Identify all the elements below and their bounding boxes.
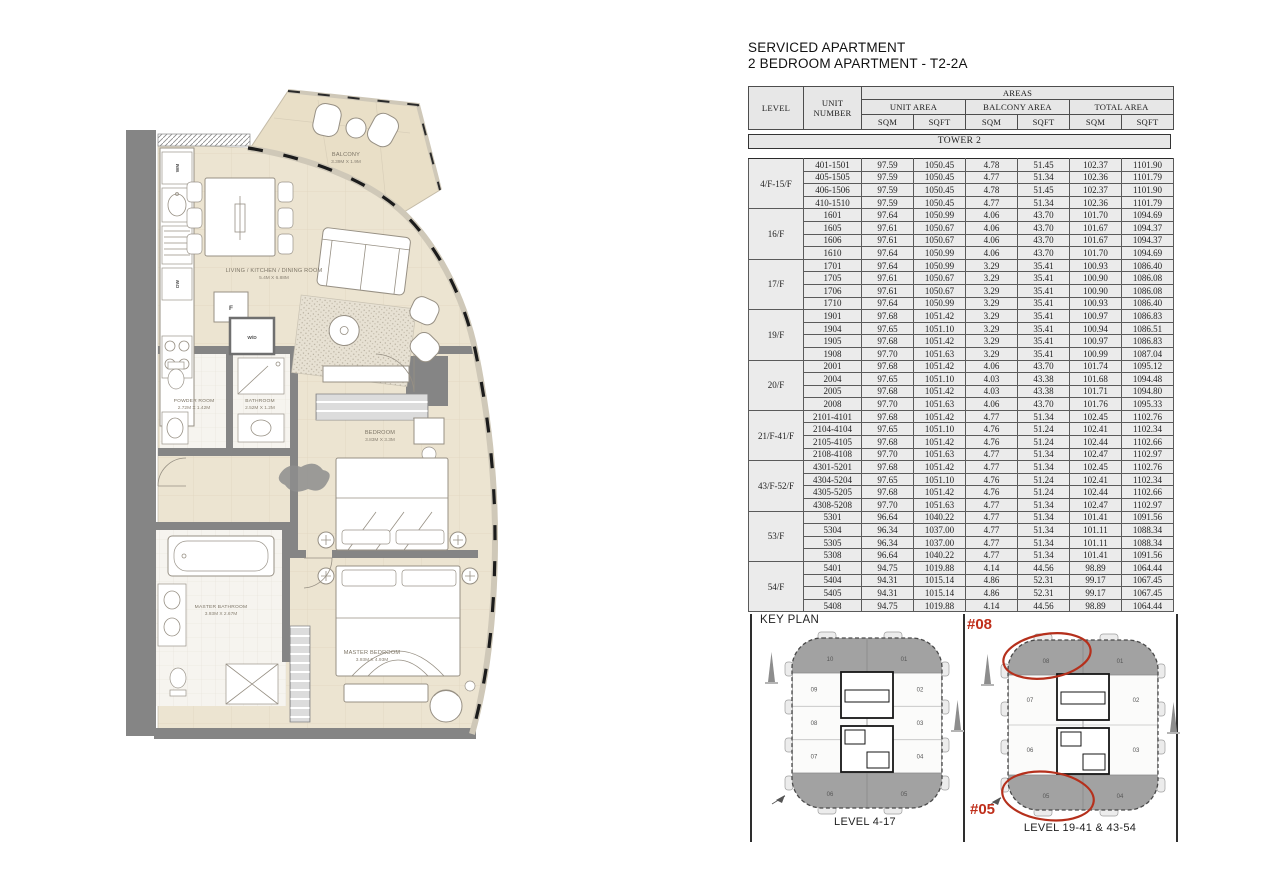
unit-number-cell: 4305-5205 — [804, 486, 862, 499]
key-plan-level-4-17: 10010908070203040605 — [762, 630, 972, 815]
col-areas: AREAS — [862, 87, 1174, 100]
area-value-cell: 1050.45 — [914, 196, 966, 209]
area-value-cell: 51.34 — [1018, 536, 1070, 549]
keyplan-unit-label: 03 — [1133, 748, 1140, 754]
table-row: 2104-410497.651051.104.7651.24102.411102… — [749, 423, 1174, 436]
area-value-cell: 1051.42 — [914, 486, 966, 499]
area-value-cell: 1051.42 — [914, 335, 966, 348]
area-value-cell: 1050.99 — [914, 259, 966, 272]
title-line1: SERVICED APARTMENT — [748, 40, 905, 55]
area-value-cell: 35.41 — [1018, 310, 1070, 323]
area-value-cell: 97.65 — [862, 373, 914, 386]
powder-room-label: POWDER ROOM — [174, 398, 215, 404]
table-row: 19/F190197.681051.423.2935.41100.971086.… — [749, 310, 1174, 323]
keyplan-unit-label: 01 — [1117, 659, 1124, 665]
area-value-cell: 99.17 — [1070, 587, 1122, 600]
col-sqm: SQM — [966, 115, 1018, 130]
area-value-cell: 96.34 — [862, 536, 914, 549]
area-value-cell: 1051.42 — [914, 436, 966, 449]
key-plan-caption-1: LEVEL 4-17 — [800, 816, 930, 828]
unit-number-cell: 2004 — [804, 373, 862, 386]
area-value-cell: 97.61 — [862, 234, 914, 247]
area-value-cell: 97.68 — [862, 335, 914, 348]
area-value-cell: 1051.63 — [914, 398, 966, 411]
keyplan-unit-label: 02 — [1133, 698, 1140, 704]
area-value-cell: 1087.04 — [1122, 347, 1174, 360]
area-value-cell: 97.61 — [862, 272, 914, 285]
keyplan-unit-label: 08 — [1043, 659, 1050, 665]
area-value-cell: 1101.90 — [1122, 184, 1174, 197]
level-cell: 43/F-52/F — [749, 461, 804, 511]
keyplan-unit-label: 05 — [1043, 794, 1050, 800]
area-value-cell: 1086.40 — [1122, 297, 1174, 310]
area-value-cell: 3.29 — [966, 259, 1018, 272]
area-value-cell: 1086.08 — [1122, 272, 1174, 285]
area-value-cell: 97.61 — [862, 284, 914, 297]
tower-icon — [1170, 702, 1177, 732]
area-value-cell: 97.68 — [862, 461, 914, 474]
area-value-cell: 97.64 — [862, 259, 914, 272]
area-table-header: LEVEL UNIT NUMBER AREAS UNIT AREA BALCON… — [748, 86, 1174, 130]
area-value-cell: 1067.45 — [1122, 574, 1174, 587]
area-value-cell: 1086.83 — [1122, 335, 1174, 348]
area-value-cell: 1101.90 — [1122, 159, 1174, 172]
area-value-cell: 4.06 — [966, 209, 1018, 222]
master-bedroom-dims: 3.93M X 4.93M — [356, 657, 389, 663]
area-value-cell: 97.68 — [862, 310, 914, 323]
unit-number-cell: 2108-4108 — [804, 448, 862, 461]
area-value-cell: 43.70 — [1018, 221, 1070, 234]
unit-number-cell: 5404 — [804, 574, 862, 587]
unit-number-cell: 1710 — [804, 297, 862, 310]
unit-number-cell: 1606 — [804, 234, 862, 247]
table-row: 200597.681051.424.0343.38101.711094.80 — [749, 385, 1174, 398]
area-value-cell: 101.67 — [1070, 234, 1122, 247]
table-row: 540494.311015.144.8652.3199.171067.45 — [749, 574, 1174, 587]
area-value-cell: 1102.76 — [1122, 410, 1174, 423]
area-value-cell: 101.67 — [1070, 221, 1122, 234]
area-value-cell: 1050.99 — [914, 247, 966, 260]
area-value-cell: 1086.40 — [1122, 259, 1174, 272]
area-value-cell: 97.68 — [862, 486, 914, 499]
dw-label: DW — [175, 280, 181, 288]
area-value-cell: 1102.97 — [1122, 448, 1174, 461]
table-row: 20/F200197.681051.424.0643.70101.741095.… — [749, 360, 1174, 373]
closet — [290, 626, 310, 722]
double-vanity — [158, 584, 186, 646]
unit-number-cell: 405-1505 — [804, 171, 862, 184]
unit-number-cell: 401-1501 — [804, 159, 862, 172]
table-row: 530596.341037.004.7751.34101.111088.34 — [749, 536, 1174, 549]
area-value-cell: 4.06 — [966, 234, 1018, 247]
area-value-cell: 4.86 — [966, 574, 1018, 587]
area-value-cell: 1050.67 — [914, 234, 966, 247]
area-value-cell: 4.76 — [966, 486, 1018, 499]
area-value-cell: 3.29 — [966, 335, 1018, 348]
area-value-cell: 97.65 — [862, 473, 914, 486]
col-unit-area: UNIT AREA — [862, 100, 966, 115]
table-row: 170597.611050.673.2935.41100.901086.08 — [749, 272, 1174, 285]
area-value-cell: 97.68 — [862, 385, 914, 398]
area-value-cell: 1051.63 — [914, 499, 966, 512]
floor-plan: WM DW F — [118, 78, 530, 778]
area-value-cell: 1050.99 — [914, 209, 966, 222]
area-value-cell: 1094.69 — [1122, 209, 1174, 222]
area-value-cell: 4.77 — [966, 461, 1018, 474]
area-value-cell: 3.29 — [966, 310, 1018, 323]
area-value-cell: 1050.45 — [914, 159, 966, 172]
area-table-body: 4/F-15/F401-150197.591050.454.7851.45102… — [749, 159, 1174, 612]
unit-number-cell: 4304-5204 — [804, 473, 862, 486]
area-value-cell: 4.77 — [966, 410, 1018, 423]
master-bathroom-label: MASTER BATHROOM — [195, 604, 248, 610]
table-row: 43/F-52/F4301-520197.681051.424.7751.341… — [749, 461, 1174, 474]
area-value-cell: 52.31 — [1018, 574, 1070, 587]
area-value-cell: 44.56 — [1018, 599, 1070, 612]
area-value-cell: 101.11 — [1070, 524, 1122, 537]
title-line2: 2 BEDROOM APARTMENT - T2-2A — [748, 56, 968, 71]
balcony-label: BALCONY — [332, 152, 360, 158]
col-sqm: SQM — [1070, 115, 1122, 130]
keyplan-unit-label: 03 — [917, 721, 924, 727]
area-value-cell: 101.68 — [1070, 373, 1122, 386]
table-row: 170697.611050.673.2935.41100.901086.08 — [749, 284, 1174, 297]
area-value-cell: 35.41 — [1018, 322, 1070, 335]
table-row: 4308-520897.701051.634.7751.34102.471102… — [749, 499, 1174, 512]
keyplan-unit-label: 10 — [827, 657, 834, 663]
area-value-cell: 1064.44 — [1122, 562, 1174, 575]
area-value-cell: 97.70 — [862, 398, 914, 411]
area-value-cell: 102.37 — [1070, 184, 1122, 197]
area-value-cell: 94.31 — [862, 574, 914, 587]
level-cell: 20/F — [749, 360, 804, 410]
table-row: 405-150597.591050.454.7751.34102.361101.… — [749, 171, 1174, 184]
area-value-cell: 35.41 — [1018, 347, 1070, 360]
area-value-cell: 51.34 — [1018, 524, 1070, 537]
area-value-cell: 1094.80 — [1122, 385, 1174, 398]
unit-number-cell: 2104-4104 — [804, 423, 862, 436]
area-value-cell: 1015.14 — [914, 587, 966, 600]
area-value-cell: 4.76 — [966, 436, 1018, 449]
area-value-cell: 1094.37 — [1122, 234, 1174, 247]
area-value-cell: 101.76 — [1070, 398, 1122, 411]
area-value-cell: 51.34 — [1018, 511, 1070, 524]
area-value-cell: 4.14 — [966, 562, 1018, 575]
table-row: 406-150697.591050.454.7851.45102.371101.… — [749, 184, 1174, 197]
area-value-cell: 102.47 — [1070, 448, 1122, 461]
table-row: 21/F-41/F2101-410197.681051.424.7751.341… — [749, 410, 1174, 423]
area-value-cell: 4.77 — [966, 448, 1018, 461]
bedroom-label: BEDROOM — [365, 430, 395, 436]
core-block — [1057, 674, 1109, 720]
tv-console — [323, 366, 409, 382]
area-value-cell: 97.61 — [862, 221, 914, 234]
area-value-cell: 3.29 — [966, 322, 1018, 335]
area-value-cell: 97.64 — [862, 209, 914, 222]
area-value-cell: 100.90 — [1070, 284, 1122, 297]
area-value-cell: 51.34 — [1018, 448, 1070, 461]
col-balcony-area: BALCONY AREA — [966, 100, 1070, 115]
table-row: 16/F160197.641050.994.0643.70101.701094.… — [749, 209, 1174, 222]
area-value-cell: 1051.42 — [914, 360, 966, 373]
table-row: 530896.641040.224.7751.34101.411091.56 — [749, 549, 1174, 562]
area-value-cell: 1086.08 — [1122, 284, 1174, 297]
level-cell: 53/F — [749, 511, 804, 561]
area-value-cell: 101.74 — [1070, 360, 1122, 373]
area-table: 4/F-15/F401-150197.591050.454.7851.45102… — [748, 158, 1174, 612]
key-plan-caption-2: LEVEL 19-41 & 43-54 — [995, 822, 1165, 834]
area-value-cell: 35.41 — [1018, 335, 1070, 348]
area-value-cell: 51.34 — [1018, 196, 1070, 209]
area-value-cell: 100.97 — [1070, 310, 1122, 323]
table-row: 4/F-15/F401-150197.591050.454.7851.45102… — [749, 159, 1174, 172]
area-value-cell: 1051.63 — [914, 448, 966, 461]
unit-number-cell: 1901 — [804, 310, 862, 323]
sofa — [317, 227, 411, 295]
top-wall — [158, 134, 250, 146]
area-value-cell: 97.65 — [862, 322, 914, 335]
area-value-cell: 102.41 — [1070, 473, 1122, 486]
area-value-cell: 3.29 — [966, 347, 1018, 360]
area-value-cell: 4.77 — [966, 536, 1018, 549]
area-value-cell: 1051.10 — [914, 423, 966, 436]
area-value-cell: 100.90 — [1070, 272, 1122, 285]
area-value-cell: 1091.56 — [1122, 549, 1174, 562]
area-value-cell: 1102.76 — [1122, 461, 1174, 474]
area-value-cell: 1102.66 — [1122, 486, 1174, 499]
unit-number-cell: 2105-4105 — [804, 436, 862, 449]
area-value-cell: 94.75 — [862, 562, 914, 575]
area-value-cell: 35.41 — [1018, 272, 1070, 285]
tower-icon — [954, 700, 961, 730]
area-value-cell: 4.03 — [966, 385, 1018, 398]
area-value-cell: 4.06 — [966, 360, 1018, 373]
table-row: 171097.641050.993.2935.41100.931086.40 — [749, 297, 1174, 310]
area-value-cell: 100.94 — [1070, 322, 1122, 335]
area-value-cell: 51.34 — [1018, 410, 1070, 423]
area-value-cell: 97.64 — [862, 297, 914, 310]
unit-number-cell: 1908 — [804, 347, 862, 360]
unit-number-cell: 1605 — [804, 221, 862, 234]
unit-number-cell: 1701 — [804, 259, 862, 272]
table-row: 2105-410597.681051.424.7651.24102.441102… — [749, 436, 1174, 449]
tower-banner: TOWER 2 — [748, 134, 1171, 149]
area-value-cell: 1091.56 — [1122, 511, 1174, 524]
level-cell: 4/F-15/F — [749, 159, 804, 209]
level-cell: 19/F — [749, 310, 804, 360]
keyplan-unit-label: 05 — [901, 792, 908, 798]
area-value-cell: 43.70 — [1018, 209, 1070, 222]
area-value-cell: 1050.45 — [914, 184, 966, 197]
core-block — [841, 672, 893, 718]
table-row: 200497.651051.104.0343.38101.681094.48 — [749, 373, 1174, 386]
area-value-cell: 4.76 — [966, 473, 1018, 486]
table-row: 190897.701051.633.2935.41100.991087.04 — [749, 347, 1174, 360]
area-value-cell: 4.03 — [966, 373, 1018, 386]
key-plan-level-19-54: 0801070602030504 — [978, 632, 1188, 817]
area-value-cell: 1095.33 — [1122, 398, 1174, 411]
area-value-cell: 101.71 — [1070, 385, 1122, 398]
area-value-cell: 51.24 — [1018, 423, 1070, 436]
area-value-cell: 1050.67 — [914, 284, 966, 297]
area-value-cell: 4.78 — [966, 159, 1018, 172]
table-row: 190597.681051.423.2935.41100.971086.83 — [749, 335, 1174, 348]
wardrobe — [316, 394, 428, 420]
level-cell: 54/F — [749, 562, 804, 612]
bathroom-label: BATHROOM — [245, 398, 275, 404]
area-value-cell: 98.89 — [1070, 599, 1122, 612]
area-value-cell: 1086.51 — [1122, 322, 1174, 335]
area-value-cell: 97.70 — [862, 499, 914, 512]
area-value-cell: 98.89 — [1070, 562, 1122, 575]
table-row: 54/F540194.751019.884.1444.5698.891064.4… — [749, 562, 1174, 575]
level-cell: 17/F — [749, 259, 804, 309]
unit-number-cell: 2005 — [804, 385, 862, 398]
area-value-cell: 4.77 — [966, 511, 1018, 524]
area-value-cell: 1067.45 — [1122, 587, 1174, 600]
area-value-cell: 1019.88 — [914, 599, 966, 612]
area-value-cell: 1040.22 — [914, 549, 966, 562]
area-value-cell: 1037.00 — [914, 536, 966, 549]
area-value-cell: 1037.00 — [914, 524, 966, 537]
area-value-cell: 96.34 — [862, 524, 914, 537]
area-value-cell: 4.76 — [966, 423, 1018, 436]
area-value-cell: 1094.48 — [1122, 373, 1174, 386]
area-value-cell: 51.45 — [1018, 184, 1070, 197]
keyplan-unit-label: 07 — [1027, 698, 1034, 704]
wd-label: W/D — [247, 335, 257, 341]
table-row: 17/F170197.641050.993.2935.41100.931086.… — [749, 259, 1174, 272]
unit-number-cell: 5405 — [804, 587, 862, 600]
area-value-cell: 1094.37 — [1122, 221, 1174, 234]
area-value-cell: 44.56 — [1018, 562, 1070, 575]
unit-number-cell: 2001 — [804, 360, 862, 373]
area-value-cell: 1051.10 — [914, 473, 966, 486]
table-row: 160597.611050.674.0643.70101.671094.37 — [749, 221, 1174, 234]
unit-number-cell: 4301-5201 — [804, 461, 862, 474]
area-value-cell: 1040.22 — [914, 511, 966, 524]
area-value-cell: 94.31 — [862, 587, 914, 600]
area-value-cell: 102.47 — [1070, 499, 1122, 512]
highlight-tag-05: #05 — [970, 801, 995, 818]
living-dims: 5.4M X 6.88M — [259, 275, 289, 281]
area-value-cell: 97.59 — [862, 171, 914, 184]
area-value-cell: 97.70 — [862, 448, 914, 461]
keyplan-unit-label: 09 — [811, 688, 818, 694]
area-value-cell: 1102.34 — [1122, 473, 1174, 486]
area-value-cell: 102.37 — [1070, 159, 1122, 172]
area-value-cell: 102.36 — [1070, 171, 1122, 184]
area-value-cell: 1102.34 — [1122, 423, 1174, 436]
unit-number-cell: 1905 — [804, 335, 862, 348]
area-value-cell: 1101.79 — [1122, 171, 1174, 184]
area-value-cell: 1051.10 — [914, 322, 966, 335]
area-value-cell: 97.59 — [862, 159, 914, 172]
unit-number-cell: 5401 — [804, 562, 862, 575]
living-label: LIVING / KITCHEN / DINING ROOM — [226, 268, 323, 274]
unit-number-cell: 5308 — [804, 549, 862, 562]
tower-icon — [768, 652, 775, 682]
area-value-cell: 4.14 — [966, 599, 1018, 612]
area-value-cell: 35.41 — [1018, 284, 1070, 297]
divider — [750, 614, 752, 842]
highlight-tag-08: #08 — [967, 616, 992, 633]
wm-label: WM — [175, 164, 181, 173]
area-value-cell: 51.45 — [1018, 159, 1070, 172]
area-value-cell: 1019.88 — [914, 562, 966, 575]
bathroom-dims: 2.52M X 1.2M — [245, 405, 275, 411]
area-value-cell: 1102.97 — [1122, 499, 1174, 512]
area-value-cell: 96.64 — [862, 549, 914, 562]
area-value-cell: 100.97 — [1070, 335, 1122, 348]
area-value-cell: 1051.42 — [914, 385, 966, 398]
unit-number-cell: 5305 — [804, 536, 862, 549]
area-value-cell: 4.78 — [966, 184, 1018, 197]
area-value-cell: 43.70 — [1018, 247, 1070, 260]
area-value-cell: 51.34 — [1018, 499, 1070, 512]
table-row: 540594.311015.144.8652.3199.171067.45 — [749, 587, 1174, 600]
side-table — [465, 681, 475, 691]
core-wall — [126, 130, 156, 736]
area-value-cell: 100.93 — [1070, 297, 1122, 310]
area-value-cell: 97.64 — [862, 247, 914, 260]
unit-number-cell: 2008 — [804, 398, 862, 411]
area-value-cell: 97.68 — [862, 360, 914, 373]
area-value-cell: 102.44 — [1070, 436, 1122, 449]
col-sqm: SQM — [862, 115, 914, 130]
master-bathroom-dims: 3.93M X 2.67M — [205, 611, 238, 617]
desk — [414, 418, 444, 444]
area-value-cell: 1050.67 — [914, 272, 966, 285]
area-value-cell: 1051.42 — [914, 410, 966, 423]
area-value-cell: 1051.42 — [914, 461, 966, 474]
unit-number-cell: 5408 — [804, 599, 862, 612]
col-sqft: SQFT — [1122, 115, 1174, 130]
table-row: 540894.751019.884.1444.5698.891064.44 — [749, 599, 1174, 612]
table-row: 200897.701051.634.0643.70101.761095.33 — [749, 398, 1174, 411]
area-value-cell: 1051.63 — [914, 347, 966, 360]
area-value-cell: 43.70 — [1018, 398, 1070, 411]
area-value-cell: 4.86 — [966, 587, 1018, 600]
area-value-cell: 101.11 — [1070, 536, 1122, 549]
unit-number-cell: 1610 — [804, 247, 862, 260]
keyplan-unit-label: 02 — [917, 688, 924, 694]
unit-number-cell: 410-1510 — [804, 196, 862, 209]
fridge-label: F — [229, 305, 233, 312]
col-sqft: SQFT — [914, 115, 966, 130]
area-value-cell: 51.34 — [1018, 171, 1070, 184]
master-bedroom-label: MASTER BEDROOM — [344, 650, 401, 656]
col-total-area: TOTAL AREA — [1070, 100, 1174, 115]
bedroom-dims: 3.83M X 3.3M — [365, 437, 395, 443]
table-row: 190497.651051.103.2935.41100.941086.51 — [749, 322, 1174, 335]
area-value-cell: 1095.12 — [1122, 360, 1174, 373]
table-row: 161097.641050.994.0643.70101.701094.69 — [749, 247, 1174, 260]
table-row: 530496.341037.004.7751.34101.111088.34 — [749, 524, 1174, 537]
table-row: 4304-520497.651051.104.7651.24102.411102… — [749, 473, 1174, 486]
area-value-cell: 97.59 — [862, 184, 914, 197]
area-value-cell: 96.64 — [862, 511, 914, 524]
area-value-cell: 1102.66 — [1122, 436, 1174, 449]
area-value-cell: 1094.69 — [1122, 247, 1174, 260]
area-value-cell: 51.34 — [1018, 549, 1070, 562]
area-value-cell: 1050.99 — [914, 297, 966, 310]
area-value-cell: 99.17 — [1070, 574, 1122, 587]
area-value-cell: 1050.45 — [914, 171, 966, 184]
area-value-cell: 100.93 — [1070, 259, 1122, 272]
table-row: 53/F530196.641040.224.7751.34101.411091.… — [749, 511, 1174, 524]
balcony-dims: 3.39M X 1.9M — [331, 159, 361, 165]
